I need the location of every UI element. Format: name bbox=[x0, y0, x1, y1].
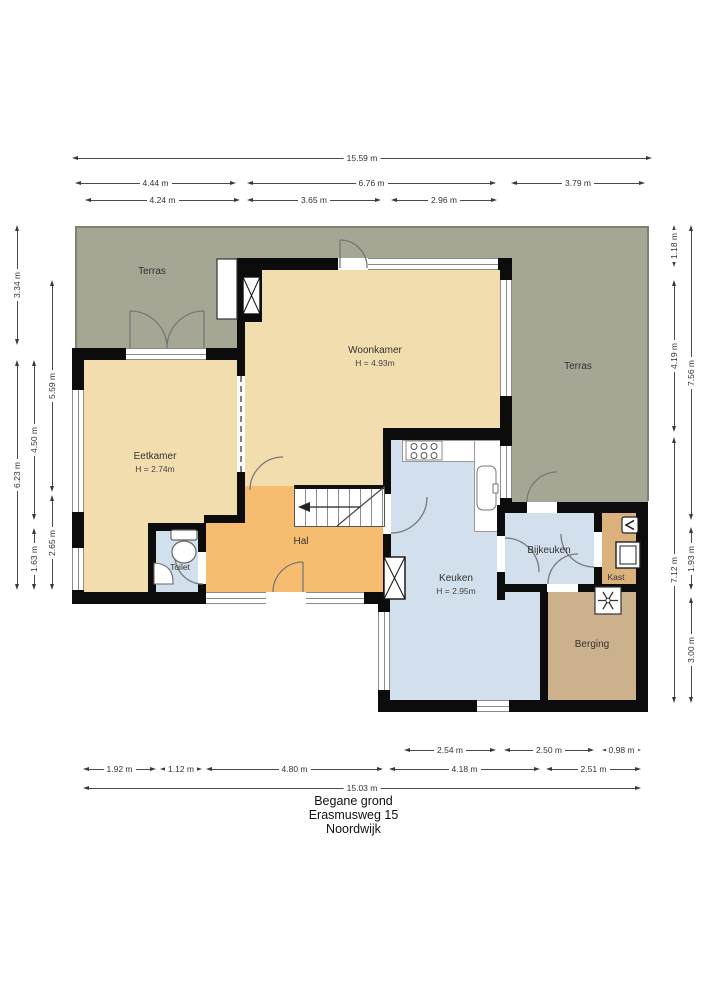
dimension: 3.34 m bbox=[12, 225, 22, 345]
window bbox=[206, 592, 266, 604]
room-height: H = 2.74m bbox=[134, 463, 177, 475]
dimension-label: 3.65 m bbox=[298, 195, 330, 205]
dimension-label: 2.65 m bbox=[47, 527, 57, 559]
window bbox=[368, 258, 498, 270]
wall bbox=[383, 428, 504, 440]
dimension: 1.12 m bbox=[160, 764, 202, 774]
room-label-terras-left: Terras bbox=[138, 266, 166, 278]
dimension: 1.63 m bbox=[29, 528, 39, 590]
window bbox=[500, 280, 512, 396]
room-terras-top-fill bbox=[242, 226, 510, 259]
dimension-label: 1.12 m bbox=[165, 764, 197, 774]
dimension-label: 6.76 m bbox=[356, 178, 388, 188]
dimension-label: 2.54 m bbox=[434, 745, 466, 755]
room-keuken-fill bbox=[389, 590, 542, 702]
door-opening bbox=[266, 592, 306, 604]
wall bbox=[237, 322, 245, 378]
room-hal-fill bbox=[204, 519, 245, 594]
dimension-label: 15.59 m bbox=[344, 153, 381, 163]
dimension: 1.93 m bbox=[686, 527, 696, 590]
dimension-label: 3.34 m bbox=[12, 269, 22, 301]
dimension: 4.44 m bbox=[75, 178, 236, 188]
room-name: Woonkamer bbox=[348, 345, 402, 356]
dimension: 1.18 m bbox=[669, 225, 679, 267]
dimension: 1.92 m bbox=[83, 764, 156, 774]
door-opening bbox=[594, 532, 602, 567]
address: Erasmusweg 15 bbox=[0, 808, 707, 822]
room-label-keuken: Keuken H = 2.95m bbox=[436, 573, 475, 597]
dimension: 3.79 m bbox=[511, 178, 645, 188]
dimension-label: 4.50 m bbox=[29, 424, 39, 456]
dimension-label: 4.80 m bbox=[279, 764, 311, 774]
dimension: 0.98 m bbox=[602, 745, 641, 755]
dimension: 6.23 m bbox=[12, 360, 22, 590]
dimension-label: 4.24 m bbox=[147, 195, 179, 205]
door-opening bbox=[497, 536, 505, 572]
city: Noordwijk bbox=[0, 822, 707, 836]
window bbox=[378, 612, 390, 690]
dimension-label: 1.92 m bbox=[104, 764, 136, 774]
wall bbox=[378, 700, 648, 712]
dimension: 15.03 m bbox=[83, 783, 641, 793]
dimension-label: 7.56 m bbox=[686, 357, 696, 389]
dimension: 7.56 m bbox=[686, 225, 696, 520]
window bbox=[126, 348, 206, 360]
dimension-label: 4.19 m bbox=[669, 340, 679, 372]
room-label-bijkeuken: Bijkeuken bbox=[527, 545, 570, 557]
dimension: 7.12 m bbox=[669, 437, 679, 703]
room-terras-left-fill bbox=[76, 226, 242, 350]
door-opening bbox=[547, 584, 578, 592]
window bbox=[72, 548, 84, 590]
dimension-label: 4.44 m bbox=[140, 178, 172, 188]
open-connection bbox=[237, 376, 245, 472]
dimension-label: 4.18 m bbox=[449, 764, 481, 774]
room-name: Keuken bbox=[439, 573, 473, 584]
door-opening bbox=[198, 552, 206, 584]
dimension-label: 3.00 m bbox=[686, 634, 696, 666]
dimension: 4.18 m bbox=[389, 764, 540, 774]
room-label-berging: Berging bbox=[575, 639, 609, 651]
dimension: 3.00 m bbox=[686, 597, 696, 703]
door-opening bbox=[527, 502, 557, 513]
dimension: 4.80 m bbox=[206, 764, 383, 774]
dimension: 15.59 m bbox=[72, 153, 652, 163]
dimension: 2.51 m bbox=[546, 764, 641, 774]
dimension-label: 6.23 m bbox=[12, 459, 22, 491]
dimension-label: 0.98 m bbox=[606, 745, 638, 755]
window bbox=[477, 700, 509, 712]
door-opening bbox=[338, 258, 368, 270]
plan-title: Begane grond Erasmusweg 15 Noordwijk bbox=[0, 794, 707, 836]
dimension: 5.59 m bbox=[47, 280, 57, 492]
room-name: Eetkamer bbox=[134, 451, 177, 462]
wall bbox=[540, 592, 548, 712]
dimension: 2.50 m bbox=[504, 745, 594, 755]
window bbox=[72, 390, 84, 512]
stairs bbox=[294, 485, 385, 527]
room-height: H = 4.93m bbox=[348, 357, 402, 369]
floor-plan: Terras Woonkamer H = 4.93m Terras Eetkam… bbox=[0, 0, 707, 1000]
wall bbox=[204, 515, 245, 523]
dimension-label: 5.59 m bbox=[47, 370, 57, 402]
dimension-label: 1.63 m bbox=[29, 543, 39, 575]
dimension-label: 1.18 m bbox=[669, 230, 679, 262]
dimension-label: 3.79 m bbox=[562, 178, 594, 188]
dimension-label: 15.03 m bbox=[344, 783, 381, 793]
dimension-label: 2.96 m bbox=[428, 195, 460, 205]
wall bbox=[237, 258, 262, 322]
room-eetkamer-fill bbox=[82, 358, 239, 525]
room-label-kast: Kast bbox=[607, 571, 624, 583]
room-label-eetkamer: Eetkamer H = 2.74m bbox=[134, 451, 177, 475]
wall bbox=[636, 502, 648, 712]
room-label-terras-right: Terras bbox=[564, 361, 592, 373]
dimension: 6.76 m bbox=[247, 178, 496, 188]
dimension-label: 2.51 m bbox=[578, 764, 610, 774]
dimension-label: 2.50 m bbox=[533, 745, 565, 755]
wall bbox=[500, 502, 648, 513]
dimension-label: 7.12 m bbox=[669, 554, 679, 586]
window bbox=[306, 592, 364, 604]
dimension: 4.50 m bbox=[29, 360, 39, 520]
room-label-woonkamer: Woonkamer H = 4.93m bbox=[348, 345, 402, 369]
dimension: 4.24 m bbox=[85, 195, 240, 205]
dimension: 2.54 m bbox=[404, 745, 496, 755]
room-label-hal: Hal bbox=[293, 536, 308, 548]
dimension: 2.65 m bbox=[47, 495, 57, 590]
window bbox=[500, 446, 512, 498]
dimension: 4.19 m bbox=[669, 280, 679, 432]
dimension-label: 1.93 m bbox=[686, 543, 696, 575]
wall bbox=[148, 523, 156, 596]
room-eetkamer-fill bbox=[82, 521, 150, 596]
dimension: 2.96 m bbox=[391, 195, 497, 205]
room-height: H = 2.95m bbox=[436, 585, 475, 597]
floor-name: Begane grond bbox=[0, 794, 707, 808]
room-label-toilet: Toilet bbox=[170, 561, 190, 573]
dimension: 3.65 m bbox=[247, 195, 381, 205]
room-woonkamer-fill bbox=[243, 428, 385, 492]
